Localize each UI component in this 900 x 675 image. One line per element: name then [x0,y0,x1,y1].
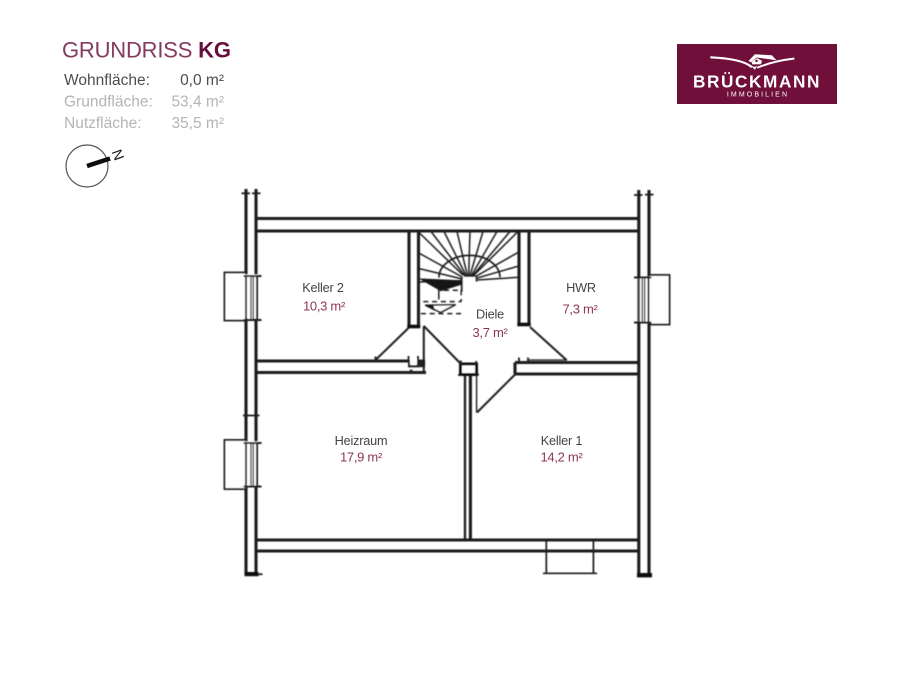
svg-text:Wohnfläche:: Wohnfläche: [64,72,150,89]
svg-text:Diele: Diele [476,308,504,322]
svg-text:0,0 m²: 0,0 m² [180,72,224,89]
svg-text:Grundfläche:: Grundfläche: [64,94,153,111]
svg-text:53,4 m²: 53,4 m² [171,94,224,111]
svg-text:14,2 m²: 14,2 m² [541,450,584,465]
svg-text:17,9 m²: 17,9 m² [340,450,383,465]
svg-text:GRUNDRISS KG: GRUNDRISS KG [62,38,231,63]
svg-text:IMMOBILIEN: IMMOBILIEN [727,92,789,99]
svg-text:35,5 m²: 35,5 m² [171,115,224,132]
svg-text:BRÜCKMANN: BRÜCKMANN [693,72,821,92]
svg-text:Keller 2: Keller 2 [302,281,344,295]
svg-text:Heizraum: Heizraum [335,434,388,448]
svg-text:10,3 m²: 10,3 m² [303,299,346,314]
svg-text:Nutzfläche:: Nutzfläche: [64,115,142,132]
svg-text:N: N [108,147,127,162]
svg-text:3,7 m²: 3,7 m² [472,325,508,340]
svg-text:HWR: HWR [566,281,596,295]
svg-text:7,3 m²: 7,3 m² [562,302,598,317]
svg-text:Keller 1: Keller 1 [541,434,583,448]
